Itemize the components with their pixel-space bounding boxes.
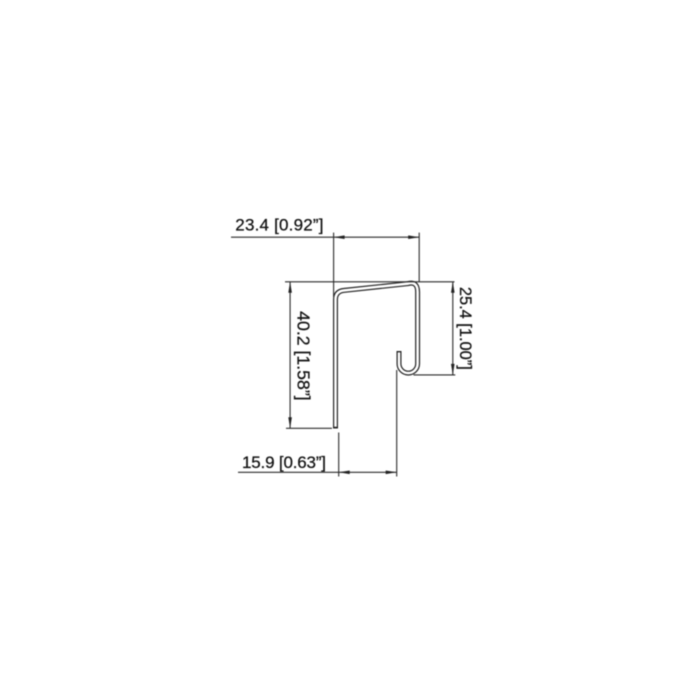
svg-text:40.2 [1.58”]: 40.2 [1.58”] [293,311,313,400]
svg-text:25.4 [1.00”]: 25.4 [1.00”] [456,287,474,370]
svg-text:15.9 [0.63”]: 15.9 [0.63”] [242,453,326,472]
svg-text:23.4 [0.92”]: 23.4 [0.92”] [235,216,323,235]
